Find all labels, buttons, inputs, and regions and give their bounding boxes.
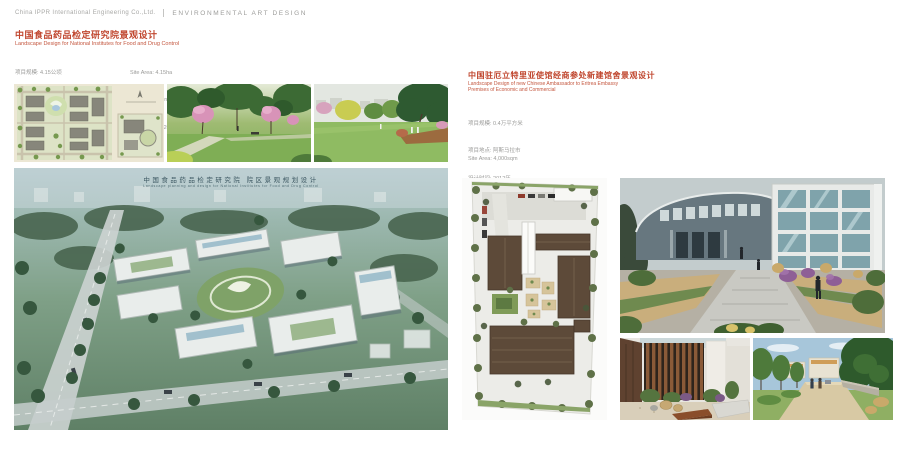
page-header: China IPPR International Engineering Co.… xyxy=(15,9,307,17)
fence-garden-render-image xyxy=(620,338,750,420)
aerial-overlay-title-zh: 中国食品药品检定研究院 院区景观规划设计 xyxy=(14,174,448,184)
campus-aerial-render-image: 中国食品药品检定研究院 院区景观规划设计 Landscape planning … xyxy=(14,168,448,430)
aerial-overlay-title-en: Landscape planning and design for Nation… xyxy=(14,184,448,188)
company-name: China IPPR International Engineering Co.… xyxy=(15,10,155,16)
project-left-title-zh: 中国食品药品检定研究院景观设计 xyxy=(15,30,315,40)
project-left-heading: 中国食品药品检定研究院景观设计 Landscape Design for Nat… xyxy=(15,30,315,48)
park-blossom-render-graphic xyxy=(167,84,311,162)
embassy-courtyard-render-image xyxy=(620,178,885,333)
project-right-heading: 中国驻厄立特里亚使馆经商参处新建馆舍景观设计 Landscape Design … xyxy=(468,71,728,94)
park-blossom-render-image xyxy=(167,84,311,162)
meta-line: Site Area: 4,000sqm xyxy=(468,155,525,164)
project-left-title-en: Landscape Design for National Institutes… xyxy=(15,41,315,48)
fence-garden-render-graphic xyxy=(620,338,750,420)
meta-line: 项目规模: 4.15公顷 xyxy=(15,69,62,78)
site-master-plan-image xyxy=(14,84,164,162)
header-divider xyxy=(163,9,164,17)
meta-line: Site Area: 4.15ha xyxy=(130,69,175,78)
meta-line: 项目规模: 0.4万平方米 xyxy=(468,120,523,129)
section-title: ENVIRONMENTAL ART DESIGN xyxy=(172,10,307,17)
park-lawn-render-image xyxy=(314,84,448,162)
embassy-axon-plan-graphic xyxy=(462,178,607,420)
project-right-title-zh: 中国驻厄立特里亚使馆经商参处新建馆舍景观设计 xyxy=(468,71,728,80)
walkway-render-graphic xyxy=(753,338,893,420)
project-right-title-en-line2: Premises of Economic and Commercial xyxy=(468,87,728,93)
walkway-render-image xyxy=(753,338,893,420)
campus-aerial-render-graphic xyxy=(14,168,448,430)
embassy-axon-plan-image xyxy=(462,178,607,420)
portfolio-spread: { "header": { "company": "China IPPR Int… xyxy=(0,0,900,450)
site-master-plan-graphic xyxy=(14,84,164,162)
park-lawn-render-graphic xyxy=(314,84,448,162)
embassy-courtyard-render-graphic xyxy=(620,178,885,333)
